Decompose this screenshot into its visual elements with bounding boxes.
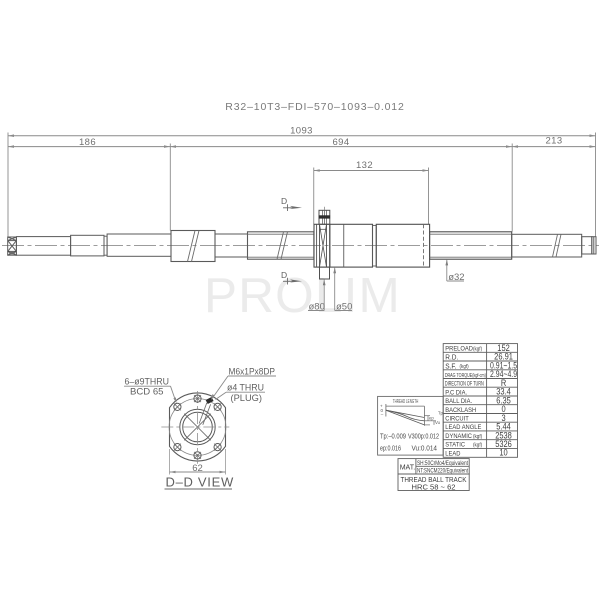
svg-text:DRAG TORQUE(kgf-cm): DRAG TORQUE(kgf-cm) bbox=[445, 373, 486, 379]
svg-text:BCD 65: BCD 65 bbox=[130, 386, 164, 397]
svg-text:D: D bbox=[281, 196, 287, 206]
svg-text:Vu: Vu bbox=[435, 420, 441, 425]
svg-text:1093: 1093 bbox=[290, 126, 313, 137]
svg-text:SH:50CrMo4/Equivalent: SH:50CrMo4/Equivalent bbox=[417, 461, 468, 467]
svg-text:(kgf): (kgf) bbox=[473, 442, 482, 448]
svg-text:ep: ep bbox=[429, 416, 434, 421]
svg-text:(kgf): (kgf) bbox=[460, 364, 469, 370]
svg-text:ø50: ø50 bbox=[336, 301, 352, 312]
svg-text:(kgf): (kgf) bbox=[473, 434, 482, 440]
svg-text:P.C DIA.: P.C DIA. bbox=[445, 389, 467, 396]
svg-text:132: 132 bbox=[356, 160, 373, 171]
svg-text:THREAD LENGTH: THREAD LENGTH bbox=[393, 399, 419, 405]
svg-text:62: 62 bbox=[192, 463, 203, 474]
svg-text:PROLIM: PROLIM bbox=[204, 268, 401, 323]
svg-text:LEAD: LEAD bbox=[445, 450, 461, 457]
svg-text:BALL DIA.: BALL DIA. bbox=[445, 398, 472, 405]
svg-text:186: 186 bbox=[79, 137, 96, 148]
svg-text:HRC 58 ~ 62: HRC 58 ~ 62 bbox=[412, 483, 456, 492]
svg-text:ø32: ø32 bbox=[448, 272, 464, 283]
svg-text:CIRCUIT: CIRCUIT bbox=[445, 415, 469, 422]
svg-text:DYNAMIC: DYNAMIC bbox=[445, 433, 472, 440]
svg-text:MAT.: MAT. bbox=[400, 462, 416, 471]
svg-text:10: 10 bbox=[499, 448, 508, 458]
svg-text:LEAD ANGLE: LEAD ANGLE bbox=[445, 424, 481, 431]
svg-text:D: D bbox=[281, 270, 287, 280]
svg-text:DIRECTION OF TURN: DIRECTION OF TURN bbox=[445, 381, 484, 387]
svg-text:694: 694 bbox=[332, 137, 349, 148]
svg-text:STATIC: STATIC bbox=[445, 441, 465, 448]
svg-text:R32–10T3–FDI–570–1093–0.012: R32–10T3–FDI–570–1093–0.012 bbox=[225, 101, 404, 113]
svg-text:(PLUG): (PLUG) bbox=[231, 393, 263, 404]
svg-text:S.F.: S.F. bbox=[445, 363, 456, 370]
svg-text:ø80: ø80 bbox=[309, 301, 325, 312]
svg-text:Tp:–0.009: Tp:–0.009 bbox=[380, 434, 406, 441]
svg-text:213: 213 bbox=[545, 136, 562, 147]
svg-text:R.D.: R.D. bbox=[445, 354, 458, 361]
svg-text:D–D VIEW: D–D VIEW bbox=[166, 475, 234, 490]
svg-text:V300p:0.012: V300p:0.012 bbox=[408, 434, 439, 441]
svg-text:ep:0.016: ep:0.016 bbox=[380, 445, 401, 452]
svg-text:Tp: Tp bbox=[438, 411, 444, 416]
svg-text:BACKLASH: BACKLASH bbox=[445, 406, 476, 413]
svg-text:Vu:0.014: Vu:0.014 bbox=[412, 445, 438, 452]
